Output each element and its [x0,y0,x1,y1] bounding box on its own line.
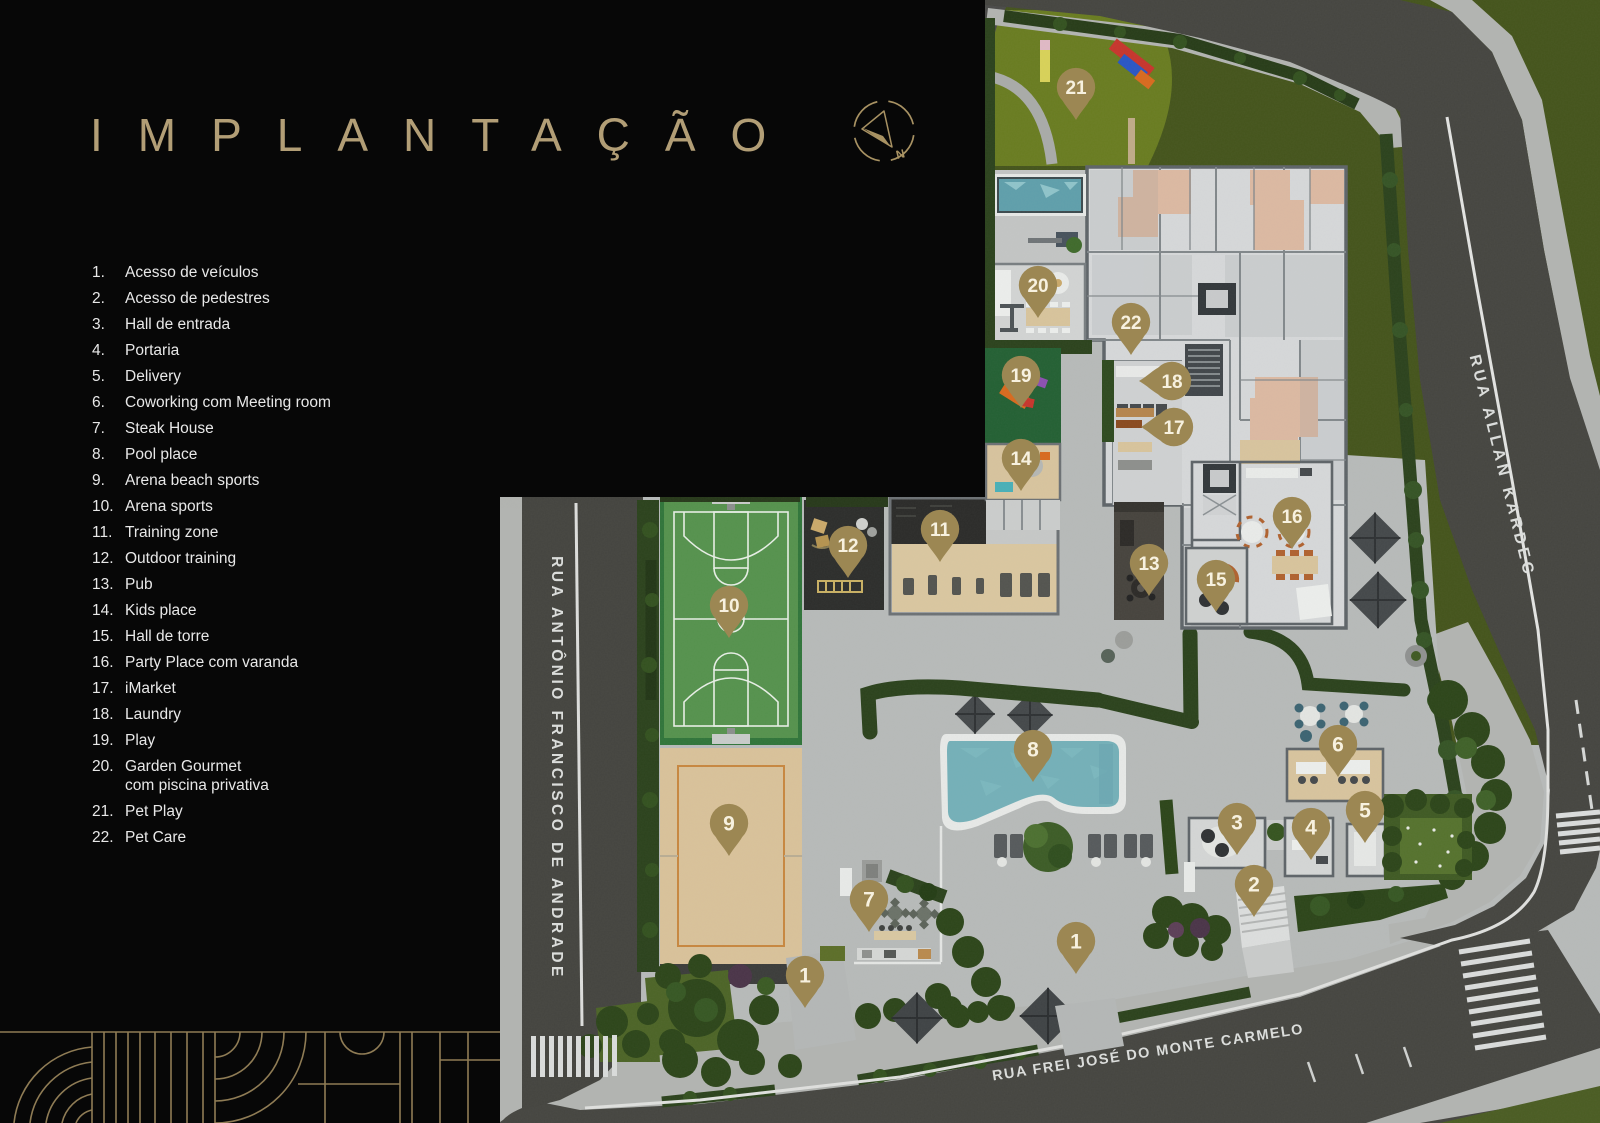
svg-text:Pool place: Pool place [125,446,197,463]
svg-text:Pet Play: Pet Play [125,803,183,820]
svg-text:22.: 22. [92,829,114,846]
svg-text:Party Place com varanda: Party Place com varanda [125,654,299,671]
svg-text:9: 9 [723,813,735,836]
svg-text:2: 2 [1248,874,1260,897]
svg-text:Play: Play [125,732,155,749]
svg-text:4.: 4. [92,342,105,359]
svg-text:Outdoor training: Outdoor training [125,550,236,567]
svg-text:1: 1 [799,965,811,988]
svg-text:Acesso de pedestres: Acesso de pedestres [125,290,270,307]
svg-text:1.: 1. [92,264,105,281]
svg-text:1: 1 [1070,931,1082,954]
svg-text:Training zone: Training zone [125,524,218,541]
svg-text:8.: 8. [92,446,105,463]
svg-text:11: 11 [930,520,951,541]
svg-text:4: 4 [1305,817,1317,840]
svg-text:Laundry: Laundry [125,706,181,723]
svg-text:11.: 11. [92,524,112,541]
svg-text:IMPLANTAÇÃO: IMPLANTAÇÃO [90,109,801,161]
svg-text:20: 20 [1027,276,1048,297]
svg-text:Hall de entrada: Hall de entrada [125,316,231,333]
svg-text:Arena sports: Arena sports [125,498,213,515]
svg-text:Arena beach sports: Arena beach sports [125,472,260,489]
svg-text:18.: 18. [92,706,114,723]
svg-text:17.: 17. [92,680,114,697]
svg-text:13.: 13. [92,576,114,593]
svg-text:Portaria: Portaria [125,342,180,359]
svg-text:8: 8 [1027,739,1039,762]
svg-text:iMarket: iMarket [125,680,177,697]
svg-text:9.: 9. [92,472,105,489]
svg-text:16: 16 [1281,507,1302,528]
svg-text:Steak House: Steak House [125,420,214,437]
svg-text:13: 13 [1138,554,1159,575]
svg-text:15: 15 [1205,570,1227,591]
svg-text:12: 12 [837,536,858,557]
svg-text:6.: 6. [92,394,105,411]
svg-text:Pet Care: Pet Care [125,829,186,846]
svg-text:16.: 16. [92,654,114,671]
svg-text:15.: 15. [92,628,114,645]
svg-text:18: 18 [1161,372,1182,393]
svg-text:19.: 19. [92,732,114,749]
svg-text:7.: 7. [92,420,105,437]
svg-text:20.: 20. [92,758,114,775]
svg-text:Garden Gourmet: Garden Gourmet [125,758,242,775]
svg-text:21: 21 [1065,78,1087,99]
svg-text:14: 14 [1010,449,1032,470]
svg-text:Acesso de veículos: Acesso de veículos [125,264,259,281]
svg-text:Hall de torre: Hall de torre [125,628,209,645]
svg-text:Delivery: Delivery [125,368,181,385]
svg-text:10: 10 [718,596,739,617]
svg-text:5.: 5. [92,368,105,385]
svg-text:Coworking com Meeting room: Coworking com Meeting room [125,394,331,411]
svg-text:com piscina privativa: com piscina privativa [125,777,269,794]
svg-text:6: 6 [1332,734,1344,757]
svg-text:3.: 3. [92,316,105,333]
svg-text:7: 7 [863,889,875,912]
svg-text:5: 5 [1359,800,1371,823]
svg-text:14.: 14. [92,602,114,619]
svg-text:22: 22 [1120,313,1141,334]
svg-text:Pub: Pub [125,576,153,593]
svg-text:12.: 12. [92,550,114,567]
svg-text:2.: 2. [92,290,105,307]
svg-text:3: 3 [1231,812,1243,835]
svg-text:Kids place: Kids place [125,602,197,619]
svg-text:17: 17 [1163,418,1184,439]
svg-text:21.: 21. [92,803,114,820]
svg-text:10.: 10. [92,498,114,515]
svg-text:19: 19 [1010,366,1031,387]
